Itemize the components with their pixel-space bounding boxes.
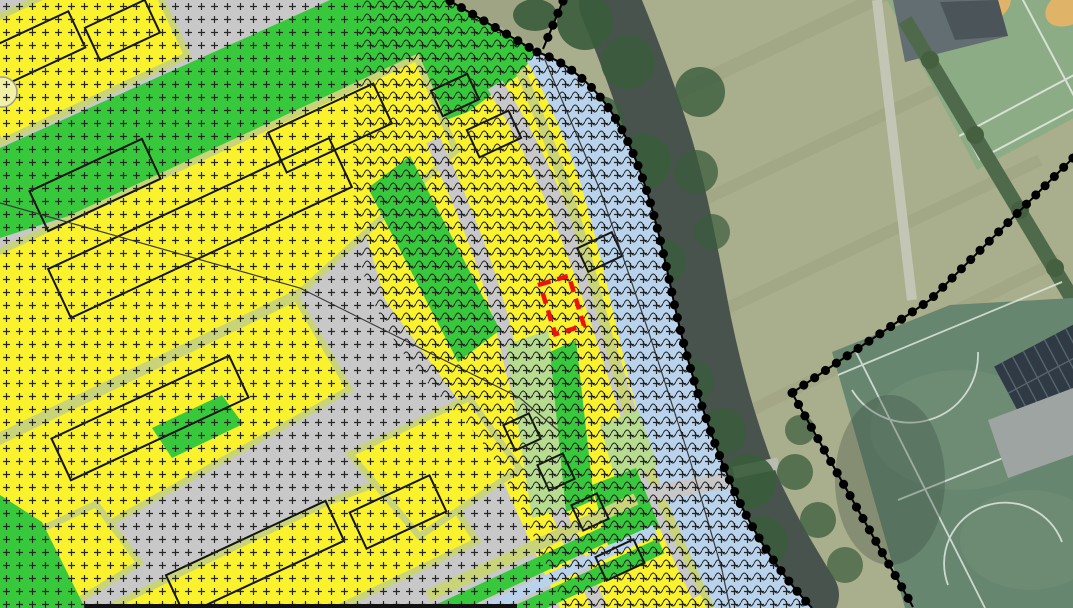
zoning-map-canvas[interactable] <box>0 0 1073 608</box>
map-frame-edge <box>85 604 517 608</box>
tree-shadow <box>835 395 945 565</box>
map-viewport[interactable] <box>0 0 1073 608</box>
